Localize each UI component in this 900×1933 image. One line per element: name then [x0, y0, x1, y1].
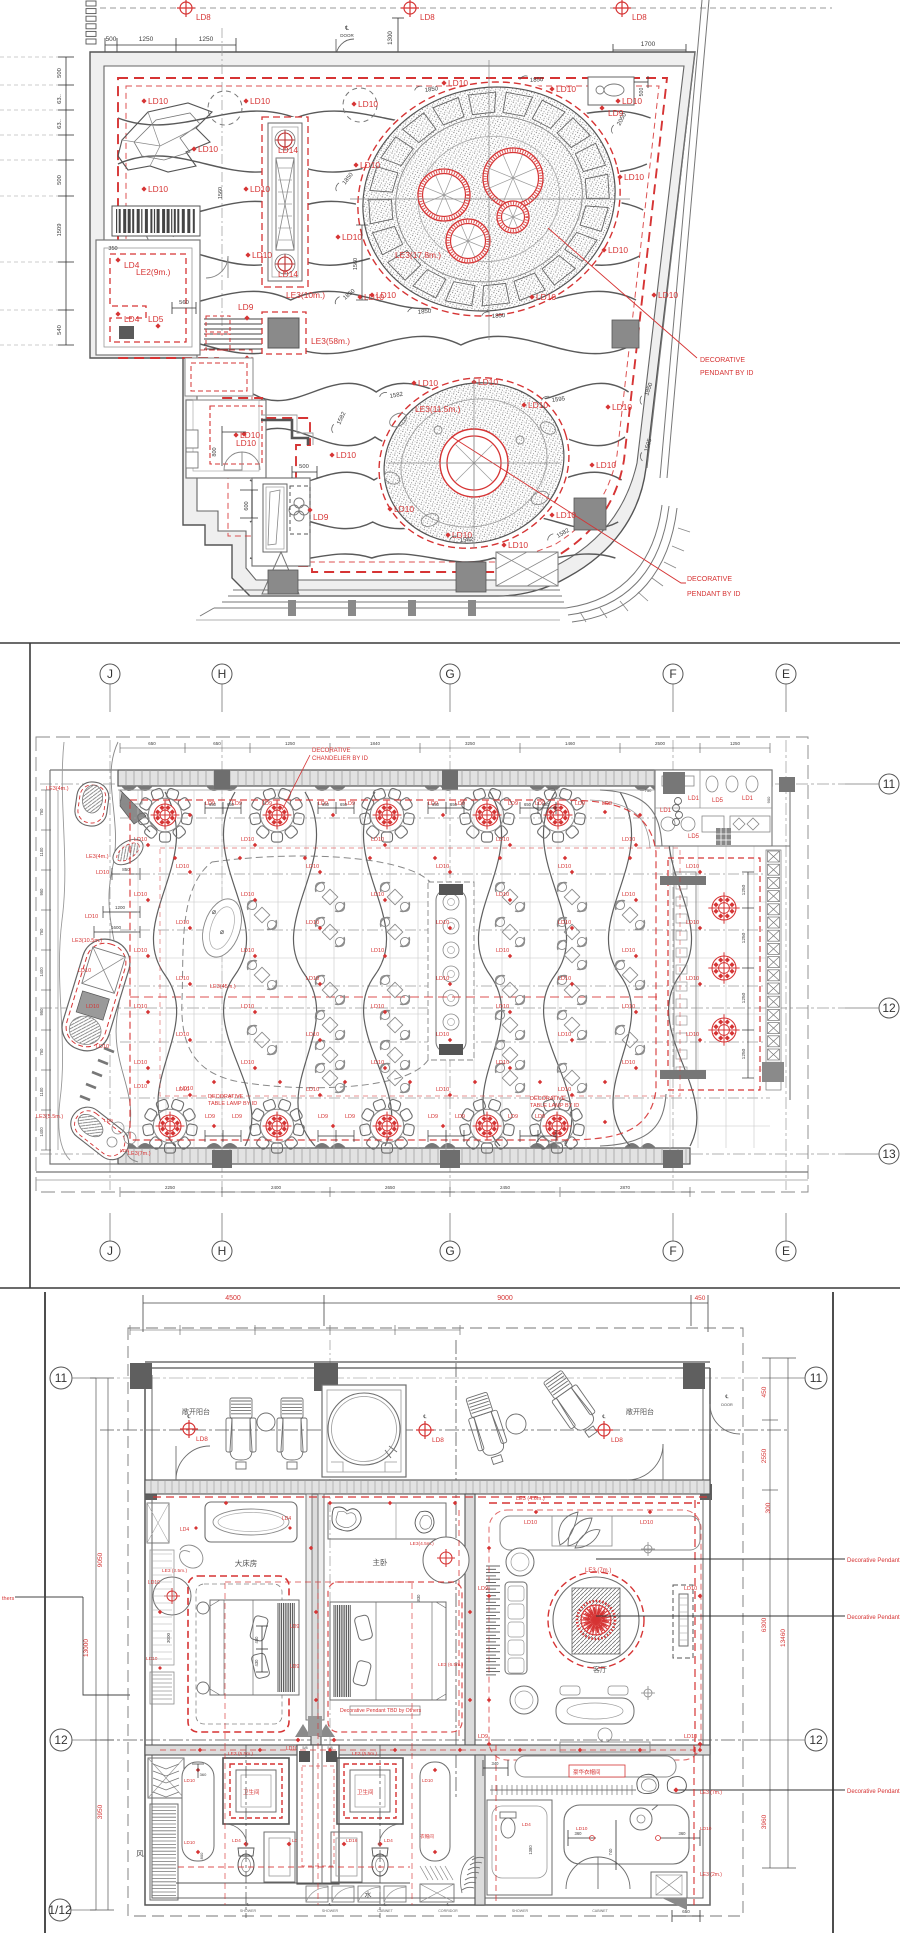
svg-text:℄: ℄	[328, 1902, 332, 1907]
svg-text:9050: 9050	[97, 1552, 104, 1567]
svg-text:1509: 1509	[57, 224, 63, 237]
svg-text:LD9: LD9	[345, 1114, 355, 1120]
svg-text:11: 11	[883, 777, 896, 791]
svg-text:LD10: LD10	[371, 948, 384, 954]
svg-text:LD10: LD10	[686, 1032, 699, 1038]
svg-text:LD10: LD10	[700, 1826, 712, 1832]
svg-text:LD10: LD10	[436, 920, 449, 926]
svg-text:LD10: LD10	[134, 1060, 147, 1066]
svg-text:1250: 1250	[741, 932, 747, 943]
svg-text:卫生间: 卫生间	[357, 1788, 374, 1796]
svg-text:LD10: LD10	[360, 160, 380, 170]
svg-text:PENDANT BY ID: PENDANT BY ID	[700, 370, 753, 377]
svg-text:℄: ℄	[344, 26, 349, 32]
svg-text:LD10: LD10	[358, 99, 378, 109]
svg-text:LD10: LD10	[250, 184, 270, 194]
svg-text:650: 650	[682, 1909, 690, 1914]
svg-text:11: 11	[55, 1371, 68, 1385]
svg-text:LD8: LD8	[196, 1436, 208, 1443]
svg-text:DECORATIVE: DECORATIVE	[530, 1096, 566, 1102]
svg-text:450: 450	[695, 1295, 706, 1302]
svg-text:LD10: LD10	[508, 540, 528, 550]
svg-text:LD10: LD10	[306, 976, 319, 982]
svg-text:LD10: LD10	[686, 976, 699, 982]
svg-text:1850: 1850	[530, 77, 544, 84]
svg-text:2550: 2550	[761, 1448, 768, 1463]
svg-text:LD10: LD10	[184, 1840, 195, 1845]
svg-text:LD10: LD10	[184, 1778, 195, 1783]
svg-text:LD10: LD10	[134, 948, 147, 954]
svg-text:540: 540	[57, 325, 63, 335]
svg-text:LD1: LD1	[660, 808, 672, 814]
svg-text:LD9: LD9	[602, 801, 612, 807]
svg-text:2450: 2450	[500, 1185, 511, 1190]
svg-text:340: 340	[492, 1761, 500, 1766]
svg-text:LD10: LD10	[422, 1778, 433, 1783]
svg-text:1250: 1250	[285, 741, 296, 746]
svg-text:12: 12	[54, 1733, 68, 1747]
svg-text:1250: 1250	[199, 36, 214, 43]
svg-text:830: 830	[416, 1594, 421, 1602]
svg-text:LD10: LD10	[148, 184, 168, 194]
svg-text:3250: 3250	[465, 741, 476, 746]
svg-text:1250: 1250	[741, 1048, 747, 1059]
svg-text:LD10: LD10	[622, 1060, 635, 1066]
svg-text:1560: 1560	[218, 187, 224, 199]
svg-text:LD10: LD10	[371, 1004, 384, 1010]
svg-text:LD1: LD1	[742, 796, 754, 802]
svg-text:LD10: LD10	[686, 864, 699, 870]
svg-text:LE3 (7m.): LE3 (7m.)	[700, 1790, 722, 1796]
svg-text:13460: 13460	[780, 1629, 787, 1647]
svg-text:500: 500	[639, 88, 645, 97]
svg-text:1850: 1850	[492, 313, 506, 320]
svg-text:LD9: LD9	[508, 1114, 518, 1120]
svg-text:13000: 13000	[83, 1639, 90, 1657]
svg-text:LD9: LD9	[232, 1114, 242, 1120]
svg-text:LD9: LD9	[238, 302, 254, 312]
svg-text:LD10: LD10	[240, 430, 260, 440]
svg-text:LD9: LD9	[290, 1664, 299, 1670]
svg-text:LD10: LD10	[134, 837, 147, 843]
svg-text:360: 360	[679, 1831, 687, 1836]
svg-text:⌀: ⌀	[220, 929, 224, 936]
svg-text:LE3(4m.): LE3(4m.)	[46, 786, 69, 792]
svg-text:J: J	[107, 667, 113, 681]
svg-text:LD10: LD10	[376, 290, 396, 300]
svg-text:1300: 1300	[387, 31, 394, 45]
svg-text:LD10: LD10	[306, 864, 319, 870]
svg-text:LD10: LD10	[78, 968, 91, 974]
svg-text:LD10: LD10	[436, 1087, 449, 1093]
svg-text:LD8: LD8	[432, 1437, 444, 1444]
svg-text:LE3(7m.): LE3(7m.)	[128, 1151, 151, 1157]
svg-text:LD10: LD10	[612, 402, 632, 412]
svg-text:LD16: LD16	[346, 1838, 358, 1844]
svg-text:1250: 1250	[741, 992, 747, 1003]
svg-text:LE3(10.5m.): LE3(10.5m.)	[72, 938, 102, 944]
svg-text:LD10: LD10	[148, 96, 168, 106]
svg-text:LD4: LD4	[384, 1838, 393, 1844]
svg-text:350: 350	[108, 246, 117, 252]
svg-text:800: 800	[199, 1852, 204, 1859]
svg-text:℄: ℄	[246, 1902, 250, 1907]
svg-text:600: 600	[244, 501, 250, 510]
svg-text:LD10: LD10	[286, 1746, 298, 1752]
svg-text:DECORATIVE: DECORATIVE	[312, 748, 351, 754]
svg-text:LD10: LD10	[576, 1826, 588, 1832]
svg-text:水: 水	[365, 1890, 372, 1899]
svg-text:LD10: LD10	[342, 232, 362, 242]
svg-text:LD10: LD10	[686, 920, 699, 926]
svg-text:LD10: LD10	[176, 976, 189, 982]
svg-text:⌀: ⌀	[212, 909, 216, 916]
svg-text:450: 450	[761, 1386, 768, 1397]
svg-text:Decorative Pendant: Decorative Pendant	[847, 1789, 900, 1795]
svg-text:LD8: LD8	[611, 1437, 623, 1444]
svg-text:2250: 2250	[165, 1185, 176, 1190]
svg-text:PENDANT BY ID: PENDANT BY ID	[687, 591, 740, 598]
svg-text:650: 650	[542, 802, 550, 807]
svg-text:E: E	[782, 667, 790, 681]
svg-text:LD8: LD8	[420, 13, 435, 22]
svg-text:LD10: LD10	[96, 870, 109, 876]
svg-text:LD10: LD10	[371, 837, 384, 843]
svg-text:LD10: LD10	[180, 1086, 193, 1092]
svg-text:300: 300	[765, 1502, 772, 1513]
svg-text:LD10: LD10	[556, 84, 576, 94]
svg-text:500: 500	[57, 68, 63, 78]
svg-text:650: 650	[148, 741, 156, 746]
svg-text:LE3 (5.5m.): LE3 (5.5m.)	[228, 1751, 253, 1757]
svg-text:LD10: LD10	[496, 1004, 509, 1010]
svg-text:2870: 2870	[620, 1185, 631, 1190]
svg-text:1100: 1100	[39, 847, 44, 857]
svg-text:Decorative Pendant: Decorative Pendant	[847, 1558, 900, 1564]
svg-text:LD10: LD10	[394, 504, 414, 514]
svg-text:1250: 1250	[730, 741, 741, 746]
svg-text:LD4: LD4	[180, 1527, 189, 1533]
svg-text:LD10: LD10	[418, 378, 438, 388]
svg-text:LD10: LD10	[622, 96, 642, 106]
svg-text:2500: 2500	[655, 741, 666, 746]
svg-text:2650: 2650	[385, 1185, 396, 1190]
svg-text:LD4: LD4	[282, 1516, 291, 1522]
svg-text:DOOR: DOOR	[721, 1403, 733, 1407]
svg-text:LD9: LD9	[455, 1114, 465, 1120]
svg-text:650: 650	[340, 802, 348, 807]
svg-text:LE3 (2m.): LE3 (2m.)	[700, 1872, 722, 1878]
svg-text:500: 500	[106, 36, 117, 43]
svg-text:63..: 63..	[57, 94, 63, 104]
svg-text:1400: 1400	[39, 967, 44, 977]
svg-text:G: G	[445, 667, 454, 681]
svg-text:1380: 1380	[528, 1845, 533, 1855]
svg-text:LD10: LD10	[496, 1060, 509, 1066]
svg-text:LD10: LD10	[436, 976, 449, 982]
svg-text:LD10: LD10	[478, 377, 498, 387]
svg-text:LD9: LD9	[205, 1114, 215, 1120]
svg-text:大床房: 大床房	[235, 1558, 258, 1568]
svg-text:LD10: LD10	[622, 837, 635, 843]
svg-text:LD10: LD10	[684, 1586, 697, 1592]
svg-text:thers: thers	[2, 1596, 14, 1602]
svg-text:500: 500	[299, 464, 309, 470]
svg-text:9000: 9000	[497, 1295, 513, 1302]
svg-text:TABLE LAMP BY ID: TABLE LAMP BY ID	[208, 1101, 257, 1107]
svg-text:1/12: 1/12	[48, 1903, 72, 1917]
svg-text:LD4: LD4	[522, 1822, 531, 1828]
svg-text:900: 900	[766, 796, 771, 803]
svg-text:11: 11	[810, 1371, 823, 1385]
svg-text:LD9: LD9	[104, 1118, 113, 1124]
svg-text:CABINET: CABINET	[592, 1909, 608, 1913]
svg-text:1460: 1460	[565, 741, 576, 746]
svg-text:LD10: LD10	[624, 172, 644, 182]
svg-text:LE3(4m.): LE3(4m.)	[86, 854, 109, 860]
svg-text:1600: 1600	[111, 925, 122, 930]
svg-text:LE3(4.5m.): LE3(4.5m.)	[410, 1541, 434, 1547]
svg-text:SHOWER: SHOWER	[240, 1909, 257, 1913]
svg-text:LD10: LD10	[558, 920, 571, 926]
svg-text:LD10: LD10	[306, 1087, 319, 1093]
svg-text:950: 950	[39, 888, 44, 896]
svg-text:LD10: LD10	[241, 948, 254, 954]
svg-text:DOOR: DOOR	[340, 33, 354, 38]
svg-text:LD10: LD10	[241, 837, 254, 843]
svg-text:LD10: LD10	[524, 1520, 537, 1526]
svg-text:LD10: LD10	[684, 1734, 697, 1740]
svg-text:430: 430	[254, 1659, 259, 1667]
svg-text:5/8: 5/8	[302, 1746, 307, 1750]
svg-text:750: 750	[39, 1048, 44, 1056]
svg-text:LD10: LD10	[436, 1032, 449, 1038]
svg-text:1560: 1560	[353, 258, 359, 270]
svg-text:740: 740	[608, 1848, 613, 1856]
svg-text:LD9: LD9	[290, 1624, 299, 1630]
svg-text:2400: 2400	[271, 1185, 282, 1190]
svg-text:LD10: LD10	[496, 948, 509, 954]
svg-text:LD10: LD10	[622, 892, 635, 898]
svg-text:LD10: LD10	[176, 920, 189, 926]
svg-text:650: 650	[432, 802, 440, 807]
svg-text:豪华衣帽间: 豪华衣帽间	[573, 1768, 601, 1776]
svg-text:CHANDELIER BY ID: CHANDELIER BY ID	[312, 756, 369, 762]
svg-text:H: H	[218, 1244, 227, 1258]
svg-text:LE3 (5.5m.): LE3 (5.5m.)	[352, 1751, 377, 1757]
svg-text:LD4: LD4	[124, 314, 140, 324]
svg-text:LD10: LD10	[640, 1520, 653, 1526]
svg-text:3960: 3960	[761, 1814, 768, 1829]
svg-text:LD10: LD10	[306, 1032, 319, 1038]
svg-text:LD9: LD9	[262, 801, 272, 807]
svg-text:750: 750	[39, 808, 44, 816]
svg-text:LD10: LD10	[558, 1087, 571, 1093]
svg-text:6300: 6300	[761, 1617, 768, 1632]
svg-text:1250: 1250	[741, 884, 747, 895]
svg-text:卫生间: 卫生间	[243, 1788, 260, 1796]
svg-text:LD10: LD10	[556, 510, 576, 520]
svg-text:LD9: LD9	[478, 1586, 488, 1592]
svg-text:LD10: LD10	[176, 1032, 189, 1038]
svg-text:LD10: LD10	[134, 1084, 147, 1090]
svg-text:风: 风	[136, 1849, 144, 1858]
svg-text:LD10: LD10	[622, 948, 635, 954]
svg-text:LE3(5.5m.): LE3(5.5m.)	[36, 1114, 63, 1120]
svg-text:LD10: LD10	[176, 864, 189, 870]
svg-text:500: 500	[57, 175, 63, 185]
svg-text:LE3 (7m.): LE3 (7m.)	[585, 1568, 611, 1574]
svg-text:LE3(45m.): LE3(45m.)	[210, 984, 236, 990]
svg-text:敞开阳台: 敞开阳台	[182, 1407, 210, 1416]
svg-text:LE3(58m.): LE3(58m.)	[311, 336, 350, 346]
svg-text:LD10: LD10	[558, 1032, 571, 1038]
svg-text:LD9: LD9	[508, 801, 518, 807]
svg-text:750: 750	[645, 788, 652, 793]
svg-text:360: 360	[200, 1772, 207, 1777]
svg-text:H: H	[218, 667, 227, 681]
svg-text:LE3(17.8m.): LE3(17.8m.)	[395, 250, 441, 260]
svg-text:LD9: LD9	[535, 1114, 545, 1120]
svg-text:LD8: LD8	[196, 13, 211, 22]
svg-text:LD10: LD10	[96, 1044, 109, 1050]
svg-text:LD9: LD9	[478, 1734, 488, 1740]
svg-text:LD1: LD1	[688, 796, 700, 802]
svg-text:主卧: 主卧	[373, 1557, 388, 1567]
svg-text:LD14: LD14	[278, 145, 298, 155]
svg-text:850: 850	[122, 867, 130, 872]
svg-text:LD10: LD10	[198, 144, 218, 154]
svg-text:LD10: LD10	[134, 1004, 147, 1010]
svg-text:LD10: LD10	[608, 245, 628, 255]
svg-text:DECORATIVE: DECORATIVE	[208, 1094, 244, 1100]
svg-text:LD10: LD10	[371, 892, 384, 898]
svg-text:1250: 1250	[139, 36, 154, 43]
svg-text:LD4: LD4	[124, 260, 140, 270]
svg-text:650: 650	[450, 802, 458, 807]
svg-text:LD10: LD10	[596, 460, 616, 470]
svg-text:LD9: LD9	[428, 1114, 438, 1120]
svg-text:650: 650	[322, 802, 330, 807]
svg-text:SHOWER: SHOWER	[512, 1909, 529, 1913]
svg-text:LD5: LD5	[148, 314, 164, 324]
svg-text:4500: 4500	[225, 1295, 241, 1302]
svg-text:DECORATIVE: DECORATIVE	[687, 576, 732, 583]
svg-text:℄: ℄	[446, 1902, 450, 1907]
svg-text:LD10: LD10	[436, 864, 449, 870]
svg-text:LD10: LD10	[558, 976, 571, 982]
svg-text:LE3(10m.): LE3(10m.)	[286, 290, 325, 300]
svg-text:E: E	[782, 1244, 790, 1258]
svg-text:G: G	[445, 1244, 454, 1258]
svg-text:敞开阳台: 敞开阳台	[626, 1407, 654, 1416]
svg-text:LD10: LD10	[85, 914, 98, 920]
svg-text:650: 650	[213, 741, 221, 746]
svg-text:LD10: LD10	[250, 96, 270, 106]
svg-text:LE3(11.5m.): LE3(11.5m.)	[415, 404, 461, 414]
svg-text:950: 950	[39, 1008, 44, 1016]
svg-text:560: 560	[179, 300, 189, 306]
svg-text:LD10: LD10	[371, 1060, 384, 1066]
svg-text:LD9: LD9	[575, 801, 585, 807]
svg-text:LD5: LD5	[712, 798, 724, 804]
svg-text:LD4: LD4	[232, 1838, 241, 1844]
svg-text:TABLE LAMP BY ID: TABLE LAMP BY ID	[530, 1103, 579, 1109]
svg-text:LD10: LD10	[622, 1004, 635, 1010]
svg-text:衣帽间: 衣帽间	[420, 1833, 434, 1840]
svg-text:3950: 3950	[97, 1804, 104, 1819]
svg-text:12: 12	[809, 1733, 823, 1747]
svg-text:CORRIDOR: CORRIDOR	[438, 1909, 458, 1913]
svg-text:650: 650	[524, 802, 532, 807]
svg-text:1700: 1700	[641, 41, 656, 48]
svg-text:℄: ℄	[383, 1902, 387, 1907]
svg-text:LD14: LD14	[278, 269, 298, 279]
svg-text:Decorative Pendant: Decorative Pendant	[847, 1615, 900, 1621]
svg-text:LD10: LD10	[558, 864, 571, 870]
svg-text:J: J	[107, 1244, 113, 1258]
svg-text:LD10: LD10	[336, 450, 356, 460]
svg-text:LD10: LD10	[536, 292, 556, 302]
svg-text:LD9: LD9	[313, 512, 329, 522]
svg-text:63..: 63..	[57, 119, 63, 129]
svg-text:12: 12	[882, 1001, 896, 1015]
svg-text:LD10: LD10	[241, 892, 254, 898]
svg-text:13: 13	[882, 1147, 896, 1161]
svg-text:LD10: LD10	[306, 920, 319, 926]
svg-text:LE3 (6.5m.): LE3 (6.5m.)	[438, 1662, 463, 1668]
svg-text:1100: 1100	[39, 1087, 44, 1097]
svg-text:1400: 1400	[39, 1127, 44, 1137]
svg-text:1582: 1582	[460, 537, 474, 544]
svg-text:LD5: LD5	[688, 834, 700, 840]
svg-text:DECORATIVE: DECORATIVE	[700, 357, 745, 364]
svg-text:LD10: LD10	[86, 1004, 99, 1010]
svg-text:LE2(9m.): LE2(9m.)	[136, 267, 171, 277]
svg-text:LD10: LD10	[448, 78, 468, 88]
svg-text:F: F	[669, 667, 676, 681]
svg-text:F: F	[669, 1244, 676, 1258]
svg-text:LE3 (2.5m.): LE3 (2.5m.)	[162, 1568, 187, 1574]
svg-text:Decorative Pendant TBD by Othe: Decorative Pendant TBD by Others	[340, 1708, 422, 1714]
svg-text:LD10: LD10	[241, 1004, 254, 1010]
svg-text:LD10: LD10	[496, 892, 509, 898]
svg-text:450: 450	[254, 1636, 259, 1644]
svg-text:CABINET: CABINET	[377, 1909, 393, 1913]
svg-text:650: 650	[209, 802, 217, 807]
svg-text:1840: 1840	[370, 741, 381, 746]
svg-text:LD10: LD10	[528, 400, 548, 410]
svg-text:LD10: LD10	[241, 1060, 254, 1066]
svg-text:SHOWER: SHOWER	[322, 1909, 339, 1913]
svg-text:LD10: LD10	[134, 892, 147, 898]
svg-text:LD10: LD10	[252, 250, 272, 260]
svg-text:LD10: LD10	[496, 837, 509, 843]
svg-text:800: 800	[212, 447, 218, 456]
svg-text:客厅: 客厅	[593, 1665, 607, 1674]
svg-text:650: 650	[227, 802, 235, 807]
svg-text:LD8: LD8	[632, 13, 647, 22]
svg-text:LD9: LD9	[318, 1114, 328, 1120]
svg-text:750: 750	[39, 928, 44, 936]
svg-text:LD10: LD10	[658, 290, 678, 300]
svg-text:1200: 1200	[115, 905, 126, 910]
